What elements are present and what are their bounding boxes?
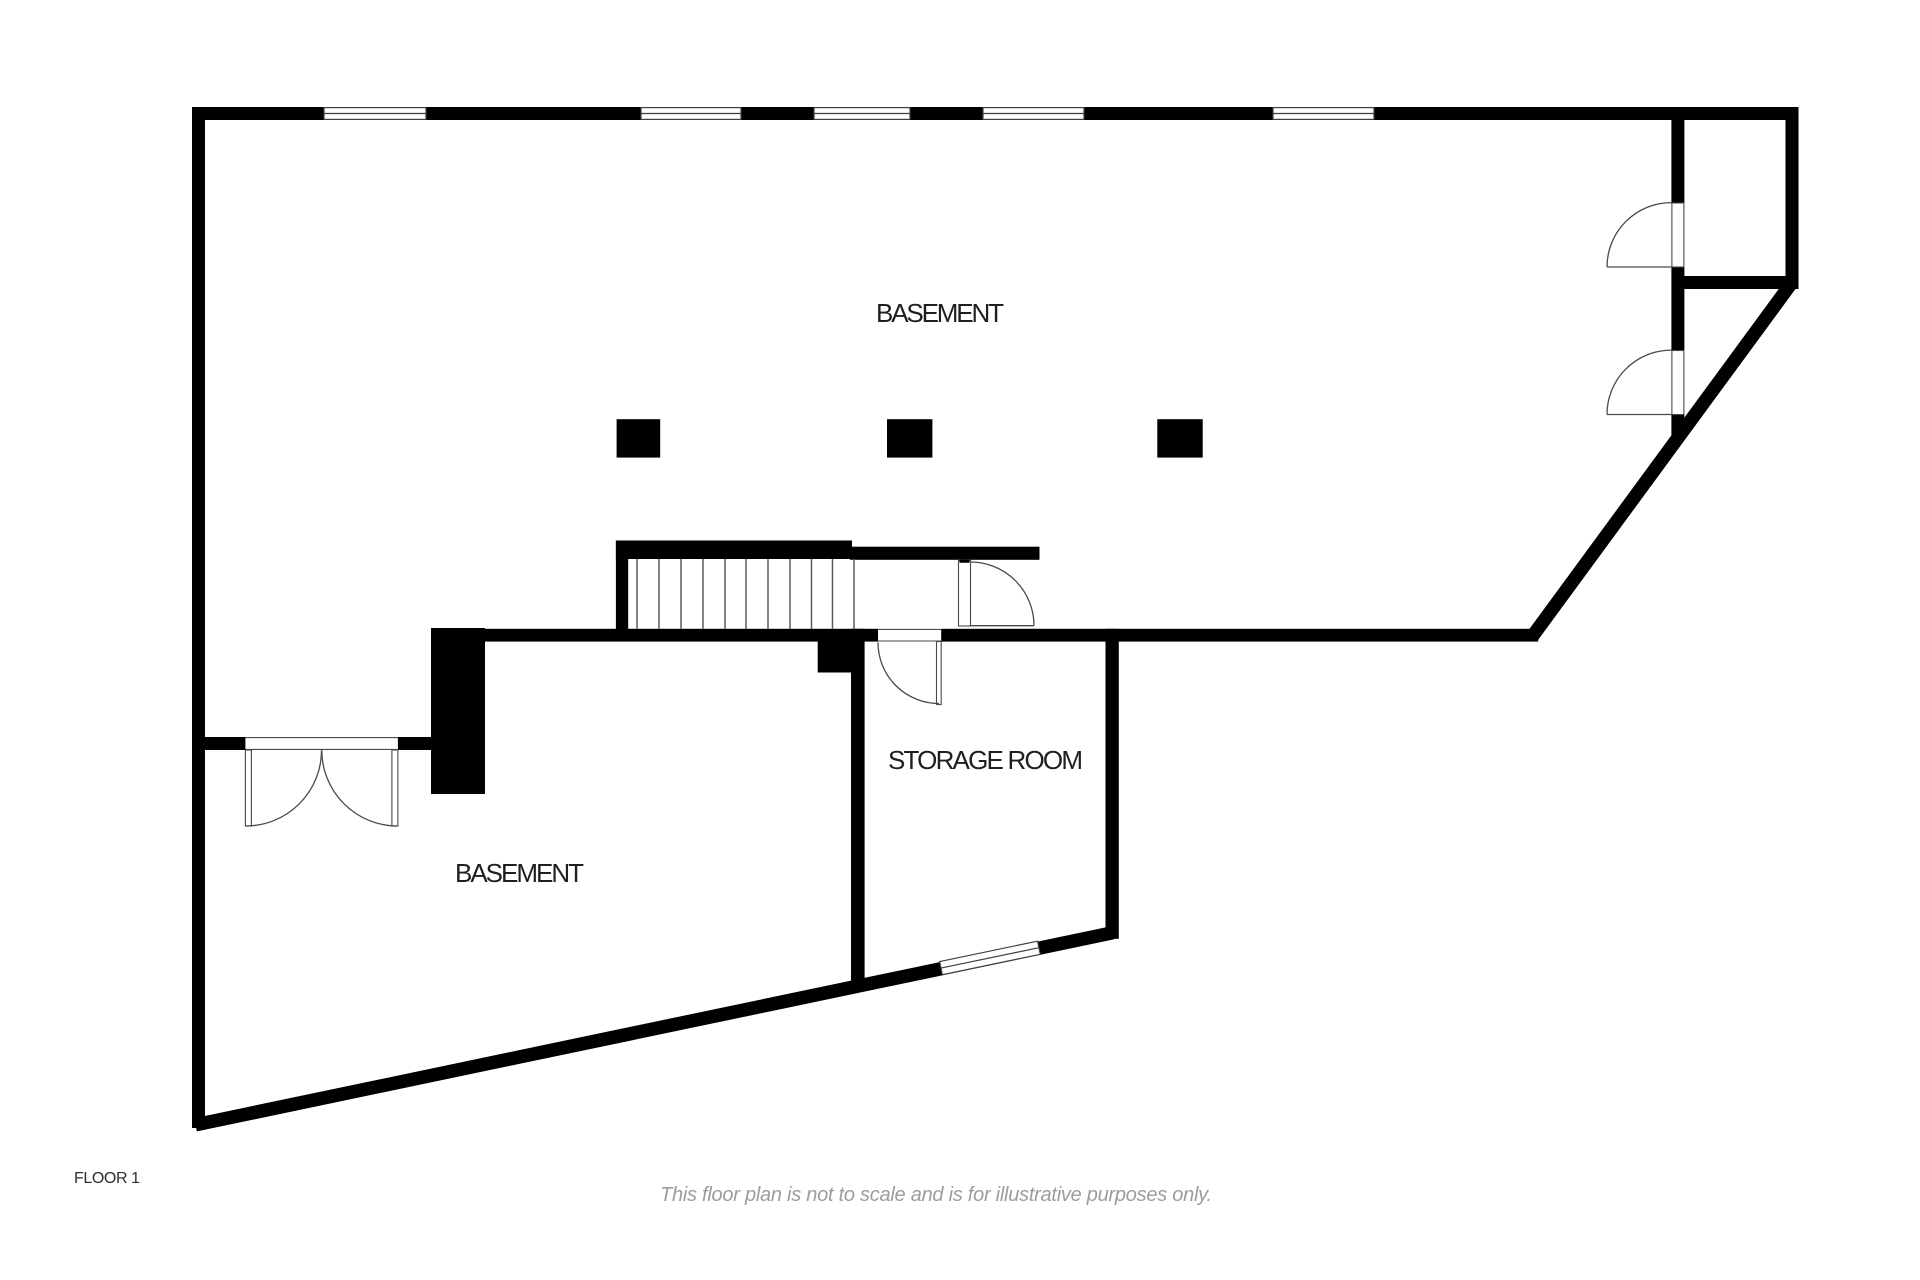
svg-text:BASEMENT: BASEMENT bbox=[876, 298, 1004, 328]
svg-text:BASEMENT: BASEMENT bbox=[455, 858, 584, 888]
svg-text:STORAGE ROOM: STORAGE ROOM bbox=[888, 745, 1083, 775]
svg-text:FLOOR 1: FLOOR 1 bbox=[74, 1170, 140, 1187]
svg-text:This floor plan is not to scal: This floor plan is not to scale and is f… bbox=[660, 1184, 1212, 1206]
